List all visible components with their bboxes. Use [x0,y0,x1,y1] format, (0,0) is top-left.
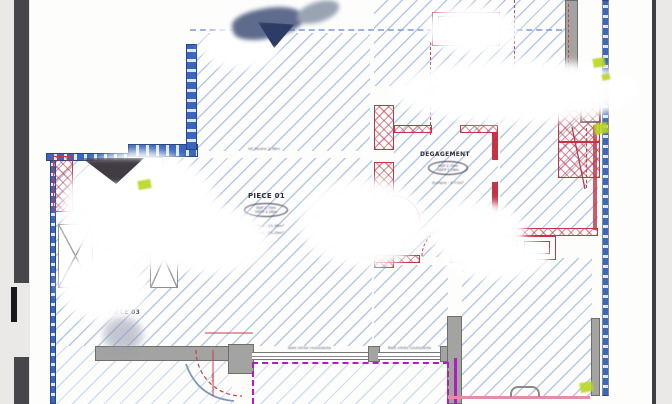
glare-blob-2 [58,252,148,322]
window-label-1: Baie vitrée coulissante [288,345,331,350]
left-edge-tick [11,287,17,322]
window-sliding-1 [252,352,368,360]
wall-red-strip-a [374,105,394,150]
piece01-hsfp: HSFP 2.26m [248,210,284,214]
floor-plan-screenshot: ⌀ 29 PIECE 01 HSP 2.70m HSFP 2.26m Surfa… [0,0,672,404]
room-label-piece01: PIECE 01 [248,192,285,200]
degagement-hsfp: HSFP 2.26m [432,168,464,172]
dimension-text-c: 1.26 [583,160,588,168]
glare-blob-7 [425,5,520,55]
closet-red-bottom [558,142,600,178]
wall-upper-room-left [186,44,197,150]
window-label-2: Baie vitrée coulissante [388,345,431,350]
terrace-outline [252,362,449,404]
glare-blob-3 [150,205,270,275]
left-edge-bar-top [14,0,29,283]
glare-blob-4 [298,178,428,268]
wall-red-top-b [460,125,498,133]
wall-red-right-a [492,133,498,160]
smudge-piece03 [102,316,144,354]
room-tag-degagement: HSP 2.70m HSFP 2.26m [428,161,468,175]
hs-poutre-label: HS Poutre 2.38m [248,146,280,151]
wall-pier-left [228,344,254,374]
window-sliding-2 [378,352,440,360]
red-dashed-line-4 [586,128,587,188]
wall-red-top-a [394,125,432,133]
hatch-center-bottom [374,265,448,347]
terrace-furniture [510,386,540,397]
room-label-degagement: DEGAGEMENT [420,151,470,158]
degagement-surface: Surface : 4.71m² [432,180,464,185]
glare-blob-9 [440,235,550,280]
left-edge-bar-bottom [14,357,29,404]
dimension-text-b: 0.90 [210,374,215,382]
glare-blob-6 [390,58,640,124]
right-edge-line [652,0,656,404]
